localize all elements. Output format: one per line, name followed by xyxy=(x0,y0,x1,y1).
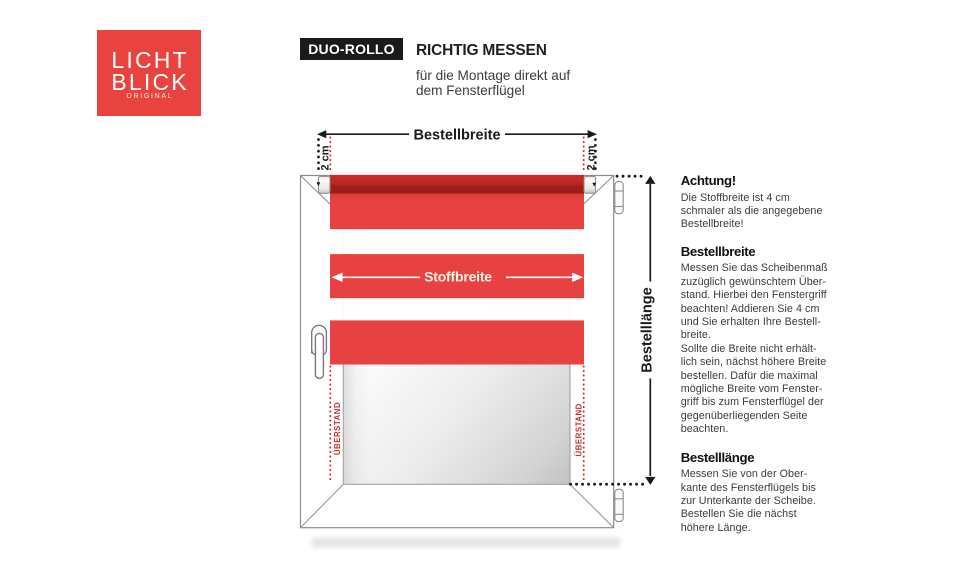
svg-text:Stoffbreite: Stoffbreite xyxy=(424,269,492,285)
svg-text:2 cm: 2 cm xyxy=(320,145,332,170)
svg-text:2 cm: 2 cm xyxy=(585,145,597,170)
svg-text:ÜBERSTAND: ÜBERSTAND xyxy=(333,402,342,455)
svg-text:Bestellbreite: Bestellbreite xyxy=(413,128,500,144)
svg-text:Bestelllänge: Bestelllänge xyxy=(640,287,656,372)
svg-text:ÜBERSTAND: ÜBERSTAND xyxy=(574,403,583,456)
